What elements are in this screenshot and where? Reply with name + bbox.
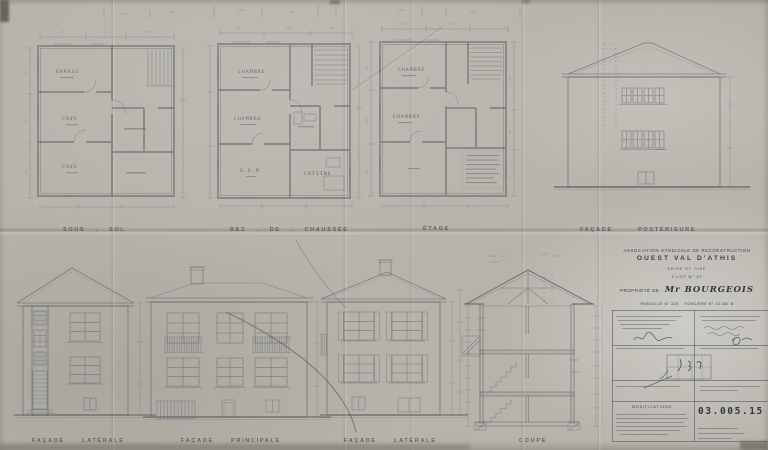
plan-sous-sol: GARAGE CAVE CAVE [26, 30, 188, 215]
sector-name: OUEST VAL D'ATHIS [606, 255, 768, 262]
illegible-notes-lines [398, 75, 500, 183]
property-line: PROPRIÉTÉ DE : Mr BOURGEOIS [606, 285, 768, 295]
stairs-and-details [460, 318, 579, 422]
dimension-lines [367, 24, 517, 209]
illegible-text-line [620, 324, 670, 325]
windows [619, 88, 667, 184]
cornice [321, 299, 446, 302]
elevation-outline [554, 43, 750, 190]
table-border [612, 345, 768, 346]
walls [38, 46, 174, 196]
signature-left [632, 330, 676, 344]
illegible-text-line [700, 316, 760, 317]
basement-windows [352, 397, 420, 412]
room-label: CUISINE [304, 171, 332, 177]
room-label: CAVE [62, 164, 78, 170]
parcel-number: PARCELLE N° 320 [640, 302, 678, 306]
section-walls [474, 304, 580, 430]
scan-blemish [740, 441, 768, 450]
roof [321, 272, 446, 299]
site-sketch [666, 354, 712, 380]
door-swings [74, 80, 126, 142]
illegible-text-line [702, 320, 756, 321]
property-label: PROPRIÉTÉ DE : [620, 288, 663, 293]
floor-slab [480, 392, 574, 396]
department: SEINE ET OISE [606, 267, 768, 271]
windows [67, 313, 103, 410]
illegible-text-line [616, 426, 687, 427]
stair-section [486, 400, 511, 423]
scan-blemish [0, 0, 9, 22]
plan-rez-de-chaussee: CHAMBRE CHAMBRE S.A.M. CUISINE [206, 26, 364, 214]
illegible-text-line [616, 386, 680, 387]
garage-fence [156, 401, 195, 419]
drawing-number: 03.005.15 [698, 406, 764, 417]
caption-coupe: COUPE [519, 438, 547, 444]
handwritten-marks [678, 359, 701, 371]
signature-right [702, 324, 760, 344]
caption-facade-posterieure: FAÇADE POSTÉRIEURE [580, 227, 696, 233]
plan-etage: CHAMBRE CHAMBRE [366, 22, 518, 214]
interior-wall [526, 306, 529, 422]
illegible-text-line [616, 418, 688, 419]
room-label: CHAMBRE [234, 116, 262, 122]
modifications-label: MODIFICATIONS [614, 405, 690, 409]
stair-hatch [314, 50, 348, 84]
dimension-lines [465, 254, 602, 426]
table-border [612, 310, 768, 311]
room-label: CAVE [62, 116, 78, 122]
illegible-text-line [700, 390, 738, 391]
elevation-facade-principale [143, 260, 331, 434]
roof-structure [464, 270, 594, 304]
parcel-line: PARCELLE N° 320 FONCIÈRE N° 13.381 B [606, 302, 768, 306]
upper-windows [167, 313, 287, 343]
illegible-text-line [698, 428, 738, 429]
elevation-facade-laterale-gauche [14, 263, 156, 433]
illegible-text-line [698, 433, 744, 434]
entrance-door [33, 371, 47, 409]
illegible-text-line [616, 348, 684, 349]
entrance-steps [26, 410, 55, 413]
illegible-text-line [616, 422, 684, 423]
section-coupe [460, 248, 608, 434]
window-sill-cuts [477, 318, 579, 372]
top-annotations [488, 254, 558, 262]
truss [500, 271, 556, 304]
roof [568, 43, 720, 74]
stair-hatch [146, 50, 172, 86]
scan-blemish [522, 0, 530, 3]
stair-window-stack [26, 306, 55, 415]
caption-sous-sol: SOUS . SOL [63, 227, 125, 233]
room-label: CHAMBRE [393, 114, 421, 120]
caption-rez-de-chaussee: REZ . DE . CHAUSSÉE [230, 227, 349, 233]
caption-etage: ÉTAGE [423, 226, 450, 232]
drawing-sheet: GARAGE CAVE CAVE [0, 0, 768, 450]
cornice [145, 298, 313, 302]
table-border [612, 401, 768, 402]
chimney [189, 267, 205, 284]
cornice [17, 303, 134, 306]
illegible-text-line [616, 430, 680, 431]
window-openings [38, 44, 174, 196]
plan-details [38, 44, 174, 196]
illegible-text-line [700, 348, 758, 349]
illegible-text-line [698, 438, 732, 439]
lot-number: 2 LOT N° 47 [606, 274, 768, 279]
room-label: S.A.M. [240, 168, 264, 174]
basement-elements [156, 400, 279, 419]
dimension-lines [727, 77, 733, 187]
fonciere-number: FONCIÈRE N° 13.381 B [685, 302, 734, 306]
illegible-text-line [616, 316, 682, 317]
scan-blemish [0, 444, 470, 450]
illegible-text-line [700, 386, 760, 387]
lower-windows [164, 358, 290, 388]
stair-section [486, 362, 516, 392]
room-label: GARAGE [56, 69, 80, 75]
floor-slab [480, 350, 574, 354]
illegible-room-labels [240, 77, 314, 177]
side-balcony-rail [320, 334, 327, 355]
windows [341, 312, 425, 383]
shutters [339, 312, 428, 382]
room-label: CHAMBRE [238, 69, 266, 75]
table-border [612, 310, 613, 441]
roof [151, 283, 307, 298]
illegible-text-line [616, 414, 686, 415]
elevation-facade-posterieure [552, 36, 752, 196]
elevation-outline [320, 260, 468, 418]
title-block: ASSOCIATION SYNDICALE DE RECONSTRUCTION … [606, 240, 768, 450]
table-border [612, 380, 768, 381]
basement-slab [476, 422, 578, 426]
owner-name: Mr BOURGEOIS [665, 285, 754, 295]
stray-dimension-marks [104, 4, 520, 18]
stair-hatch [470, 48, 502, 79]
elevation-facade-laterale-droite [320, 260, 468, 434]
illegible-text-line [620, 434, 668, 435]
illegible-text-line [618, 320, 676, 321]
room-label: CHAMBRE [398, 67, 426, 73]
scan-blemish [330, 0, 340, 4]
association-name: ASSOCIATION SYNDICALE DE RECONSTRUCTION [606, 248, 768, 253]
dimension-lines [26, 32, 186, 210]
